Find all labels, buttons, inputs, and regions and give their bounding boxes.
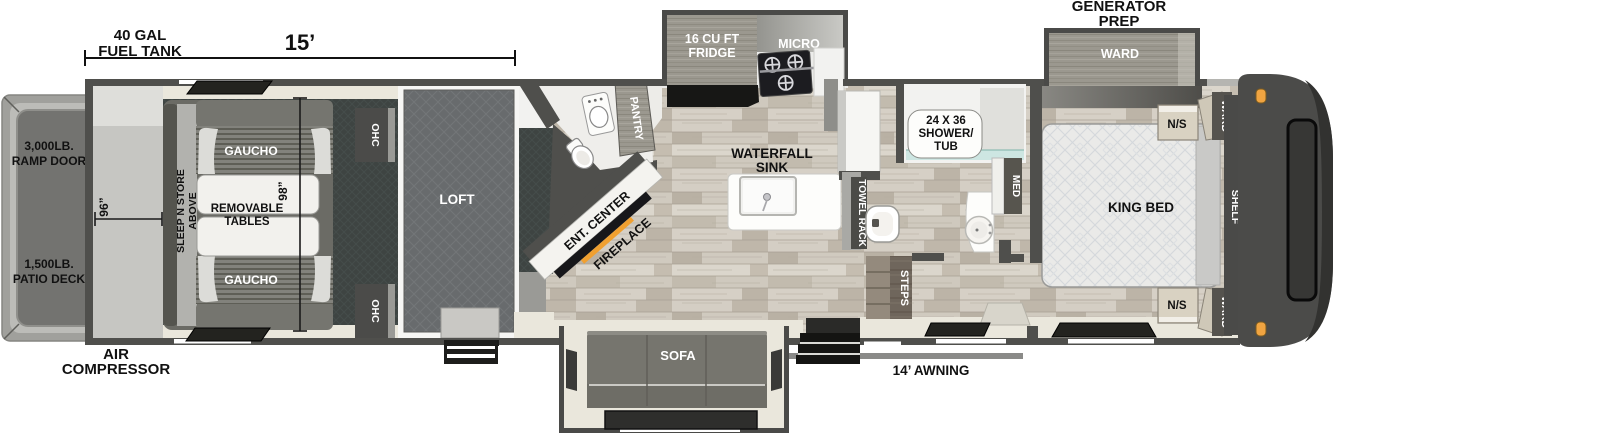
svg-text:FRIDGE: FRIDGE xyxy=(688,46,735,60)
svg-text:TABLES: TABLES xyxy=(224,216,269,228)
svg-text:OHC: OHC xyxy=(369,299,381,323)
svg-text:GAUCHO: GAUCHO xyxy=(224,273,277,287)
svg-text:N/S: N/S xyxy=(1167,300,1187,312)
svg-text:SLEEP N STORE: SLEEP N STORE xyxy=(175,169,187,253)
svg-text:WARD: WARD xyxy=(1101,47,1139,61)
svg-text:SINK: SINK xyxy=(756,160,789,175)
svg-text:24 X 36: 24 X 36 xyxy=(926,115,966,127)
svg-text:STEPS: STEPS xyxy=(898,270,910,306)
svg-text:TOWEL RACK: TOWEL RACK xyxy=(856,179,867,247)
svg-text:KING BED: KING BED xyxy=(1108,200,1174,215)
svg-text:N/S: N/S xyxy=(1167,119,1187,131)
svg-text:98”: 98” xyxy=(276,181,290,200)
svg-text:SOFA: SOFA xyxy=(660,348,696,363)
svg-text:15’: 15’ xyxy=(285,30,316,55)
svg-text:SHOWER/: SHOWER/ xyxy=(919,128,975,140)
svg-text:16 CU FT: 16 CU FT xyxy=(685,32,740,46)
svg-text:TUB: TUB xyxy=(934,141,958,153)
svg-text:REMOVABLE: REMOVABLE xyxy=(211,203,284,215)
svg-text:COMPRESSOR: COMPRESSOR xyxy=(62,361,171,378)
svg-text:LOFT: LOFT xyxy=(439,192,475,207)
svg-text:3,000LB.: 3,000LB. xyxy=(24,139,73,153)
svg-text:1,500LB.: 1,500LB. xyxy=(24,257,73,271)
svg-text:14’ AWNING: 14’ AWNING xyxy=(893,363,970,378)
svg-text:WATERFALL: WATERFALL xyxy=(731,146,813,161)
svg-text:OHC: OHC xyxy=(369,123,381,147)
svg-text:40 GAL: 40 GAL xyxy=(114,27,167,44)
svg-text:PATIO DECK: PATIO DECK xyxy=(13,272,86,286)
svg-text:RAMP DOOR: RAMP DOOR xyxy=(12,154,87,168)
svg-text:GAUCHO: GAUCHO xyxy=(224,144,277,158)
svg-text:96”: 96” xyxy=(97,197,111,216)
svg-text:MED: MED xyxy=(1010,175,1021,197)
svg-text:PREP: PREP xyxy=(1099,13,1140,30)
